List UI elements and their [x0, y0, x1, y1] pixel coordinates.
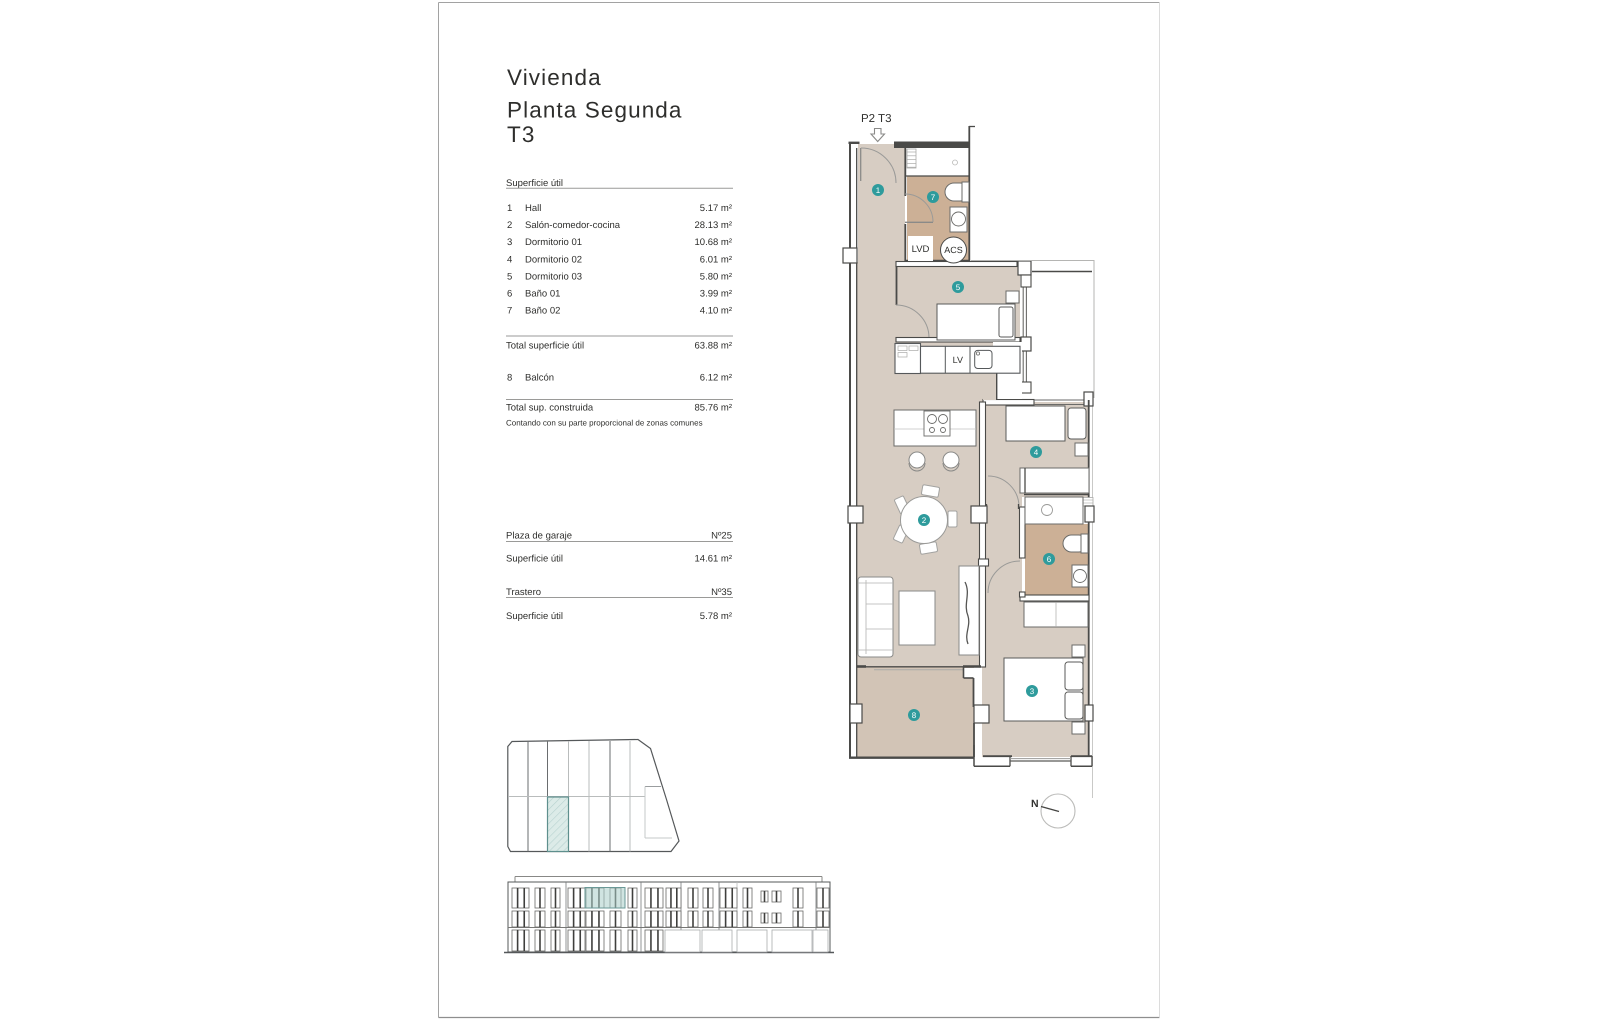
svg-text:Nº35: Nº35	[711, 587, 732, 598]
svg-text:Total sup. construida: Total sup. construida	[506, 403, 594, 414]
svg-text:Baño 02: Baño 02	[525, 306, 560, 317]
svg-text:4: 4	[1034, 448, 1039, 457]
svg-text:Vivienda: Vivienda	[507, 65, 602, 90]
svg-text:Plaza de garaje: Plaza de garaje	[506, 531, 572, 542]
svg-text:Balcón: Balcón	[525, 373, 554, 384]
svg-text:LV: LV	[953, 355, 963, 365]
svg-text:8: 8	[507, 373, 512, 384]
svg-text:Trastero: Trastero	[506, 587, 541, 598]
svg-text:Baño 01: Baño 01	[525, 289, 560, 300]
svg-text:6.01 m²: 6.01 m²	[700, 254, 732, 265]
svg-text:2: 2	[507, 220, 512, 231]
svg-text:4.10 m²: 4.10 m²	[700, 306, 732, 317]
svg-text:2: 2	[922, 516, 927, 525]
svg-text:3: 3	[1030, 687, 1035, 696]
svg-text:Dormitorio 02: Dormitorio 02	[525, 254, 582, 265]
svg-text:6: 6	[1047, 555, 1052, 564]
svg-text:28.13 m²: 28.13 m²	[695, 220, 733, 231]
svg-text:Salón-comedor-cocina: Salón-comedor-cocina	[525, 220, 621, 231]
svg-text:N: N	[1031, 798, 1039, 810]
svg-text:Total superficie útil: Total superficie útil	[506, 341, 584, 352]
svg-text:8: 8	[912, 711, 917, 720]
svg-text:1: 1	[507, 203, 512, 214]
svg-text:ACS: ACS	[944, 245, 963, 255]
svg-text:5.17 m²: 5.17 m²	[700, 203, 732, 214]
svg-text:1: 1	[876, 186, 881, 195]
svg-text:7: 7	[931, 193, 936, 202]
svg-text:3.99 m²: 3.99 m²	[700, 289, 732, 300]
svg-text:5.78 m²: 5.78 m²	[700, 611, 732, 622]
svg-text:Dormitorio 03: Dormitorio 03	[525, 271, 582, 282]
svg-text:10.68 m²: 10.68 m²	[695, 237, 733, 248]
svg-text:5: 5	[507, 271, 512, 282]
svg-text:Planta Segunda: Planta Segunda	[507, 98, 683, 123]
svg-text:63.88 m²: 63.88 m²	[695, 341, 733, 352]
svg-text:Dormitorio 01: Dormitorio 01	[525, 237, 582, 248]
svg-text:Superficie útil: Superficie útil	[506, 178, 563, 189]
svg-text:LVD: LVD	[912, 244, 930, 255]
svg-text:7: 7	[507, 306, 512, 317]
svg-text:85.76 m²: 85.76 m²	[695, 403, 733, 414]
svg-text:6.12 m²: 6.12 m²	[700, 373, 732, 384]
svg-text:3: 3	[507, 237, 512, 248]
svg-text:Nº25: Nº25	[711, 531, 732, 542]
svg-text:Contando con su parte proporci: Contando con su parte proporcional de zo…	[506, 419, 703, 428]
svg-text:T3: T3	[507, 122, 535, 147]
svg-text:6: 6	[507, 289, 512, 300]
svg-text:P2 T3: P2 T3	[861, 113, 891, 125]
svg-text:5.80 m²: 5.80 m²	[700, 271, 732, 282]
svg-text:Hall: Hall	[525, 203, 541, 214]
svg-text:14.61 m²: 14.61 m²	[695, 554, 733, 565]
svg-text:Superficie útil: Superficie útil	[506, 554, 563, 565]
svg-text:4: 4	[507, 254, 512, 265]
svg-text:Superficie útil: Superficie útil	[506, 611, 563, 622]
svg-text:5: 5	[956, 283, 961, 292]
